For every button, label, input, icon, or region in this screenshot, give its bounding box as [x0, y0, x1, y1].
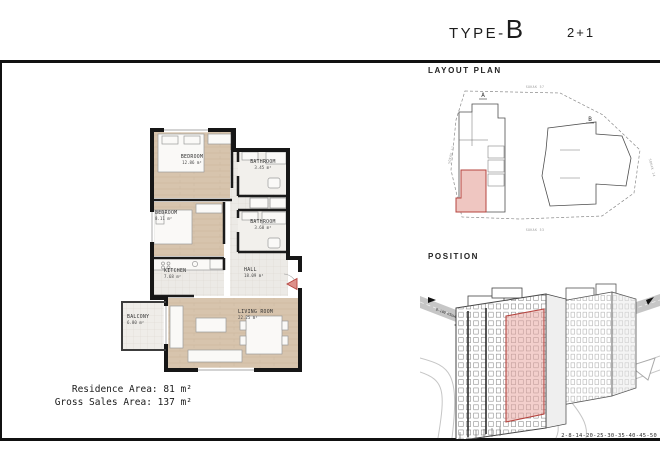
- room-area: 22.25 m²: [238, 315, 258, 320]
- residence-area-label: Residence Area:: [72, 384, 158, 395]
- room-area: 8.11 m²: [155, 216, 172, 221]
- block-a-label: A: [481, 92, 485, 99]
- block-b-footprint: [542, 122, 631, 206]
- street-label-bottom: SOKAK 53: [526, 228, 545, 232]
- left-rule: [0, 60, 2, 441]
- gross-area-value: 137 m²: [158, 397, 192, 408]
- street-label-left: SOKAK 11: [447, 145, 455, 164]
- floor-plan-drawing: BEDROOM 12.86 m² BATHROOM 3.45 m² BEDROO…: [108, 118, 312, 380]
- layout-plan-title: LAYOUT PLAN: [428, 66, 502, 75]
- type-letter: B: [506, 14, 523, 45]
- position-title: POSITION: [428, 252, 479, 261]
- position-drawing: D-100 HIGHWAY D-100 HIGHWAY: [420, 262, 660, 439]
- room-area: 18.09 m²: [244, 273, 264, 278]
- area-summary: Residence Area: 81 m² Gross Sales Area: …: [22, 384, 192, 409]
- residence-area-value: 81 m²: [163, 384, 192, 395]
- entry-arrow: [287, 279, 297, 290]
- type-prefix: TYPE-: [449, 25, 506, 42]
- site-plan-drawing: A B SOKAK 57 SOKAK 53 SOKAK 11 SOKAK 14: [425, 80, 660, 238]
- block-b-label: B: [588, 116, 592, 123]
- room-area: 3.45 m²: [254, 165, 271, 170]
- room-area: 6.80 m²: [127, 320, 144, 325]
- room-area: 7.68 m²: [164, 274, 181, 279]
- floor-numbers: 2-8-14-20-25-30-35-40-45-50: [561, 433, 657, 439]
- floorplan-sheet: TYPE-B 2+1: [0, 0, 660, 466]
- highlighted-unit: [456, 170, 486, 212]
- room-area: 12.86 m²: [182, 160, 202, 165]
- type-title: TYPE-B: [449, 14, 523, 45]
- unit-config: 2+1: [567, 25, 595, 40]
- gross-area-label: Gross Sales Area:: [55, 397, 152, 408]
- gross-area-line: Gross Sales Area: 137 m²: [22, 397, 192, 410]
- street-label-top: SOKAK 57: [526, 85, 545, 89]
- highlighted-stack: [506, 309, 544, 422]
- top-rule: [0, 60, 660, 63]
- residence-area-line: Residence Area: 81 m²: [22, 384, 192, 397]
- street-label-right: SOKAK 14: [648, 158, 656, 177]
- tower-b: [556, 284, 636, 406]
- room-area: 3.60 m²: [254, 225, 271, 230]
